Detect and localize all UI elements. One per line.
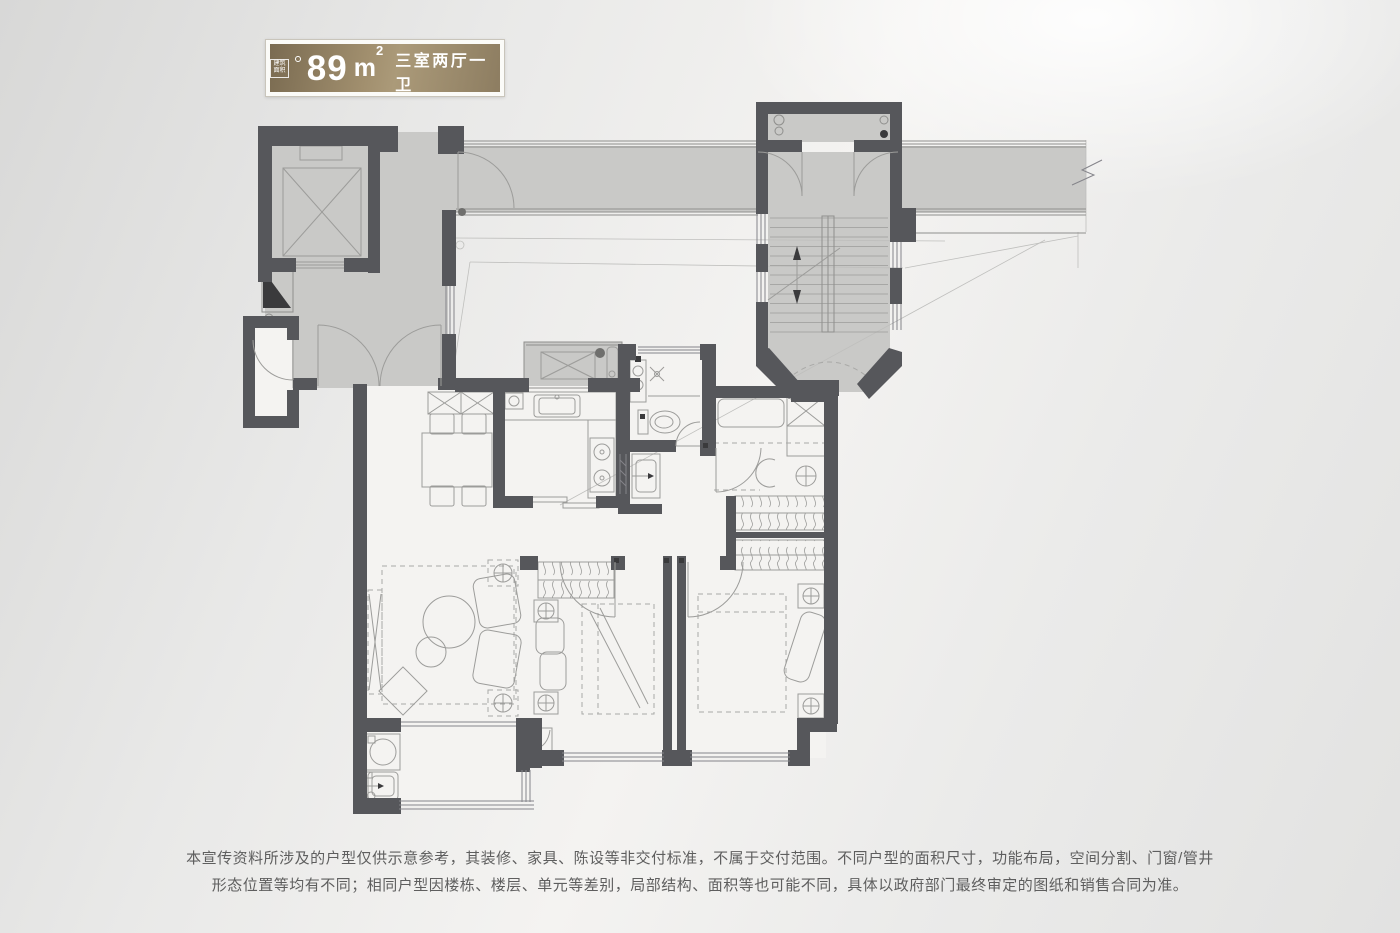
disclaimer: 本宣传资料所涉及的户型仅供示意参考，其装修、家具、陈设等非交付标准，不属于交付范… (120, 845, 1280, 899)
area-badge-inner: 建筑 面积 89 m2 三室两厅一卫 (270, 44, 500, 92)
degree-mark-icon (295, 56, 301, 62)
area-number: 89 (307, 51, 348, 86)
floorplan-page: 建筑 面积 89 m2 三室两厅一卫 本宣传资料所涉及的户型仅供示意参考，其装修… (0, 0, 1400, 933)
area-unit: m2 (354, 56, 383, 81)
door-stop-icon (458, 208, 466, 216)
drain-icon (595, 348, 605, 358)
stair-treads (770, 214, 888, 334)
disclaimer-line-1: 本宣传资料所涉及的户型仅供示意参考，其装修、家具、陈设等非交付标准，不属于交付范… (120, 845, 1280, 872)
floor-plan (0, 0, 1400, 933)
area-badge: 建筑 面积 89 m2 三室两厅一卫 (265, 39, 505, 97)
area-exponent: 2 (376, 43, 383, 58)
layout-label: 三室两厅一卫 (395, 41, 500, 95)
stair-drain-icon (880, 130, 888, 138)
disclaimer-line-2: 形态位置等均有不同；相同户型因楼栋、楼层、单元等差别，局部结构、面积等也可能不同… (120, 872, 1280, 899)
building-area-icon: 建筑 面积 (270, 59, 289, 78)
